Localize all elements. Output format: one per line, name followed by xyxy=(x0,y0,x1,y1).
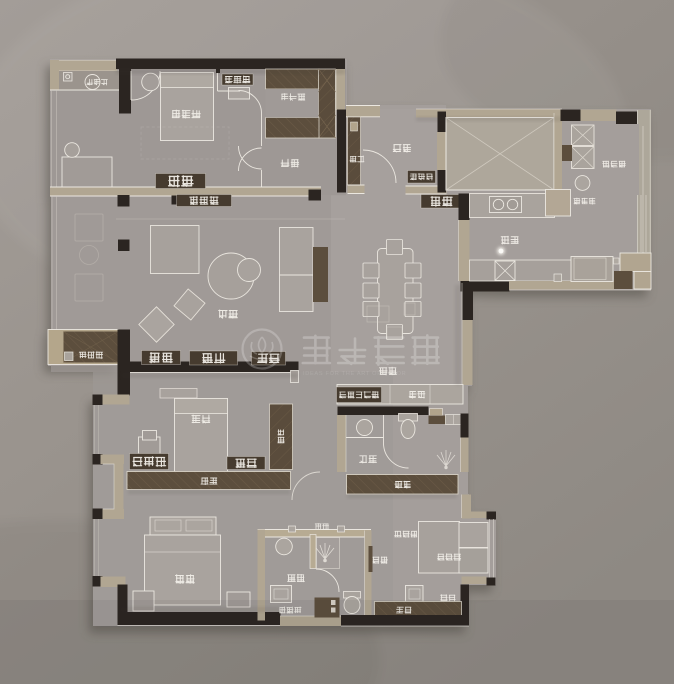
svg-text:IDEAS FOR THE ART OF FLOOR: IDEAS FOR THE ART OF FLOOR xyxy=(303,371,406,377)
